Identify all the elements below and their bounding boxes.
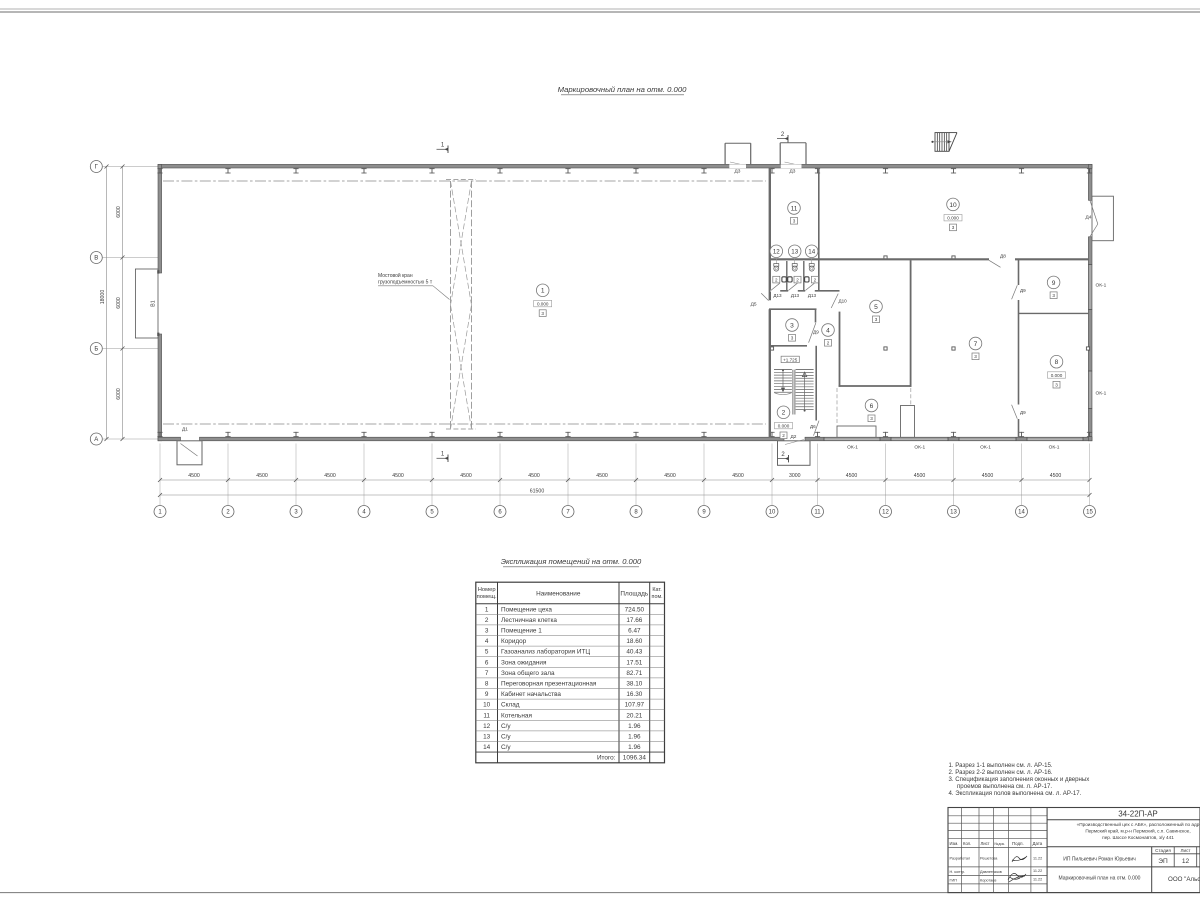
svg-text:11.22: 11.22	[1033, 857, 1042, 861]
svg-text:3: 3	[1055, 383, 1058, 388]
svg-text:1.96: 1.96	[628, 723, 641, 730]
svg-text:12: 12	[882, 510, 889, 516]
svg-text:4500: 4500	[664, 473, 676, 479]
svg-text:1.96: 1.96	[628, 734, 641, 741]
svg-text:9: 9	[485, 691, 489, 698]
svg-text:Переговорная презентационная: Переговорная презентационная	[501, 681, 597, 688]
svg-text:Мостовой кран: Мостовой кран	[378, 272, 413, 279]
svg-text:3000: 3000	[789, 473, 801, 479]
svg-text:2: 2	[827, 341, 830, 346]
svg-text:3: 3	[485, 628, 489, 635]
svg-text:Маркировочный план на отм. 0.: Маркировочный план на отм. 0.000	[558, 85, 687, 94]
svg-text:4500: 4500	[596, 473, 608, 479]
svg-text:Д2: Д2	[791, 434, 797, 440]
svg-text:18000: 18000	[100, 290, 106, 305]
svg-text:4500: 4500	[188, 473, 200, 479]
svg-text:61500: 61500	[530, 488, 545, 494]
svg-text:10: 10	[483, 702, 491, 709]
svg-text:1.96: 1.96	[628, 744, 641, 751]
svg-text:3: 3	[974, 354, 977, 359]
svg-text:6000: 6000	[116, 297, 122, 309]
svg-text:724.50: 724.50	[625, 606, 645, 613]
svg-text:Лист: Лист	[981, 841, 990, 846]
svg-text:5: 5	[485, 649, 489, 656]
svg-text:3: 3	[875, 317, 878, 322]
svg-text:107.97: 107.97	[625, 702, 645, 709]
svg-text:6000: 6000	[116, 206, 122, 218]
svg-text:Д8: Д8	[1000, 254, 1006, 260]
svg-text:2: 2	[782, 433, 785, 438]
svg-text:Коридор: Коридор	[501, 638, 527, 645]
svg-text:В: В	[94, 256, 98, 262]
svg-text:Д13: Д13	[808, 293, 817, 298]
svg-text:11: 11	[483, 712, 490, 719]
svg-text:2: 2	[775, 277, 778, 282]
svg-text:Кол.: Кол.	[963, 841, 971, 846]
svg-text:Д13: Д13	[791, 293, 800, 298]
svg-text:3: 3	[1052, 293, 1055, 298]
svg-text:ОК-1: ОК-1	[980, 445, 991, 451]
svg-text:12: 12	[483, 723, 491, 730]
svg-text:1. Разрез 1-1 выполнен см. л.: 1. Разрез 1-1 выполнен см. л. АР-15.	[949, 762, 1053, 769]
svg-text:Номер: Номер	[478, 587, 496, 593]
svg-text:грузоподъемностью 5 т: грузоподъемностью 5 т	[378, 280, 433, 286]
svg-text:Лестничная клетка: Лестничная клетка	[501, 617, 557, 624]
svg-text:4500: 4500	[914, 473, 926, 479]
svg-text:Д13: Д13	[773, 293, 782, 298]
svg-text:Д6: Д6	[810, 424, 816, 429]
svg-text:11: 11	[814, 510, 821, 516]
svg-text:Экспликация помещений на отм.: Экспликация помещений на отм. 0.000	[501, 557, 642, 566]
svg-text:0.000: 0.000	[947, 216, 959, 221]
svg-text:6.47: 6.47	[628, 628, 641, 635]
svg-text:14: 14	[808, 249, 815, 256]
svg-text:Решетова: Решетова	[980, 857, 998, 861]
svg-text:Давлетгазов: Давлетгазов	[980, 870, 1002, 874]
svg-text:82.71: 82.71	[626, 670, 642, 677]
svg-text:1: 1	[541, 288, 545, 295]
svg-text:4500: 4500	[460, 473, 472, 479]
svg-text:ОК-1: ОК-1	[847, 445, 858, 451]
svg-text:0.000: 0.000	[1051, 373, 1063, 378]
svg-text:6000: 6000	[116, 388, 122, 400]
svg-text:Д9: Д9	[1020, 410, 1026, 415]
svg-text:2: 2	[782, 410, 786, 417]
svg-text:2: 2	[796, 277, 799, 282]
svg-text:18.60: 18.60	[626, 638, 642, 645]
svg-text:«Производственный цех с АБК»,: «Производственный цех с АБК», расположен…	[1077, 821, 1200, 827]
svg-text:0.000: 0.000	[778, 423, 790, 428]
svg-text:Маркировочный план на отм. 0.0: Маркировочный план на отм. 0.000	[1059, 875, 1141, 882]
svg-text:помещ.: помещ.	[477, 594, 497, 600]
svg-text:4500: 4500	[982, 473, 994, 479]
svg-text:40.43: 40.43	[626, 649, 642, 656]
svg-text:Д5: Д5	[751, 302, 757, 308]
svg-text:Б: Б	[94, 347, 98, 353]
svg-text:Склад: Склад	[501, 702, 520, 709]
svg-text:10: 10	[949, 202, 957, 209]
svg-text:Д3: Д3	[790, 169, 796, 175]
svg-text:16.30: 16.30	[626, 691, 642, 698]
svg-text:Д9: Д9	[813, 330, 819, 335]
svg-text:Пермский край, м.р-н Пермский,: Пермский край, м.р-н Пермский, с.п. Сави…	[1085, 828, 1190, 834]
svg-text:Газоанализ лаборатория ИТЦ: Газоанализ лаборатория ИТЦ	[501, 648, 590, 656]
svg-text:3: 3	[791, 336, 794, 341]
svg-text:С/у: С/у	[501, 723, 511, 730]
svg-text:Помещение цеха: Помещение цеха	[501, 606, 552, 613]
svg-text:Д4: Д4	[1086, 215, 1092, 221]
svg-text:Зона ожидания: Зона ожидания	[501, 659, 547, 666]
svg-text:ЭП: ЭП	[1158, 858, 1168, 865]
svg-text:13: 13	[791, 249, 798, 256]
svg-text:Д10: Д10	[839, 299, 848, 304]
svg-text:11: 11	[791, 205, 798, 212]
svg-text:4500: 4500	[528, 473, 540, 479]
svg-text:2: 2	[814, 277, 817, 282]
svg-text:Д1: Д1	[182, 427, 188, 433]
svg-text:Д3: Д3	[735, 169, 741, 175]
svg-text:ОК-1: ОК-1	[1049, 445, 1060, 451]
svg-text:ИП Пилькевич Роман Юрьевич: ИП Пилькевич Роман Юрьевич	[1063, 857, 1136, 863]
svg-text:проемов выполнена см. л. АР-17: проемов выполнена см. л. АР-17.	[957, 783, 1052, 790]
svg-text:Площадь: Площадь	[620, 591, 648, 598]
svg-text:№док.: №док.	[995, 842, 1006, 846]
svg-text:14: 14	[483, 744, 491, 751]
svg-text:9: 9	[1052, 280, 1056, 287]
svg-text:8: 8	[485, 681, 489, 688]
svg-text:ОК-1: ОК-1	[1096, 391, 1107, 397]
svg-text:3: 3	[541, 311, 544, 316]
svg-text:В1: В1	[151, 300, 157, 306]
svg-text:ГИП: ГИП	[950, 879, 958, 883]
svg-text:ООО "Альфа-: ООО "Альфа-	[1168, 876, 1200, 883]
svg-text:пер. Шоссе Космонавтов, з/у 44: пер. Шоссе Космонавтов, з/у 441	[1102, 835, 1174, 840]
svg-text:1: 1	[485, 606, 489, 613]
svg-text:Итого:: Итого:	[597, 755, 616, 762]
svg-text:Коротаев: Коротаев	[980, 879, 996, 883]
svg-text:Зона общего зала: Зона общего зала	[501, 669, 555, 677]
svg-text:6: 6	[485, 659, 489, 666]
svg-text:8: 8	[1055, 359, 1059, 366]
svg-text:Кат.: Кат.	[652, 587, 661, 593]
svg-text:12: 12	[1182, 858, 1190, 865]
svg-text:4500: 4500	[256, 473, 268, 479]
svg-text:13: 13	[950, 510, 957, 516]
svg-text:А: А	[94, 437, 98, 443]
svg-text:15: 15	[1086, 510, 1093, 516]
svg-text:4500: 4500	[732, 473, 744, 479]
svg-text:6: 6	[870, 403, 874, 410]
svg-text:Лист: Лист	[1181, 848, 1192, 853]
svg-text:С/у: С/у	[501, 744, 511, 751]
svg-text:пом.: пом.	[652, 594, 663, 600]
svg-text:3: 3	[793, 219, 796, 224]
svg-text:34-22П-АР: 34-22П-АР	[1118, 809, 1158, 818]
svg-text:3. Спецификация заполнения око: 3. Спецификация заполнения оконных и две…	[949, 776, 1090, 783]
svg-text:11.22: 11.22	[1033, 878, 1042, 882]
svg-text:2. Разрез 2-2 выполнен см. л.: 2. Разрез 2-2 выполнен см. л. АР-16.	[949, 769, 1053, 776]
svg-text:4. Экспликация полов выполнена: 4. Экспликация полов выполнена см. л. АР…	[949, 790, 1082, 797]
svg-text:11.22: 11.22	[1033, 869, 1042, 873]
svg-text:4500: 4500	[392, 473, 404, 479]
svg-text:7: 7	[485, 670, 489, 677]
svg-text:7: 7	[974, 341, 978, 348]
svg-text:17.51: 17.51	[626, 659, 642, 666]
svg-text:3: 3	[870, 416, 873, 421]
svg-text:ОК-1: ОК-1	[1096, 283, 1107, 289]
svg-text:0.000: 0.000	[537, 301, 549, 306]
svg-text:13: 13	[483, 734, 491, 741]
svg-text:12: 12	[773, 249, 780, 256]
svg-text:17.66: 17.66	[626, 617, 642, 624]
svg-text:Подп.: Подп.	[1012, 841, 1024, 846]
svg-text:Стадия: Стадия	[1155, 848, 1171, 853]
svg-text:Котельная: Котельная	[501, 712, 532, 719]
svg-text:4500: 4500	[846, 473, 858, 479]
svg-text:Дата: Дата	[1033, 841, 1043, 846]
svg-text:2: 2	[485, 617, 489, 624]
svg-text:5: 5	[874, 304, 878, 311]
svg-text:10: 10	[769, 510, 776, 516]
svg-text:4: 4	[826, 327, 830, 334]
svg-text:С/у: С/у	[501, 734, 511, 741]
svg-text:3: 3	[790, 322, 794, 329]
svg-text:38.10: 38.10	[626, 681, 642, 688]
svg-text:20.21: 20.21	[626, 712, 642, 719]
svg-text:Д9: Д9	[1020, 288, 1026, 293]
svg-text:Кабинет начальства: Кабинет начальства	[501, 690, 561, 698]
svg-text:1096.34: 1096.34	[623, 755, 647, 762]
svg-text:Разработал: Разработал	[950, 857, 971, 861]
svg-text:Изм.: Изм.	[950, 841, 959, 846]
svg-text:Помещение 1: Помещение 1	[501, 628, 542, 635]
svg-text:ОК-1: ОК-1	[914, 445, 925, 451]
svg-text:4: 4	[485, 638, 489, 645]
svg-text:4500: 4500	[1050, 473, 1062, 479]
svg-text:+1.725: +1.725	[783, 357, 798, 362]
svg-text:14: 14	[1018, 510, 1025, 516]
svg-text:Наименование: Наименование	[536, 591, 581, 598]
svg-text:4500: 4500	[324, 473, 336, 479]
svg-text:Н. контр.: Н. контр.	[950, 870, 966, 874]
svg-text:3: 3	[952, 225, 955, 230]
